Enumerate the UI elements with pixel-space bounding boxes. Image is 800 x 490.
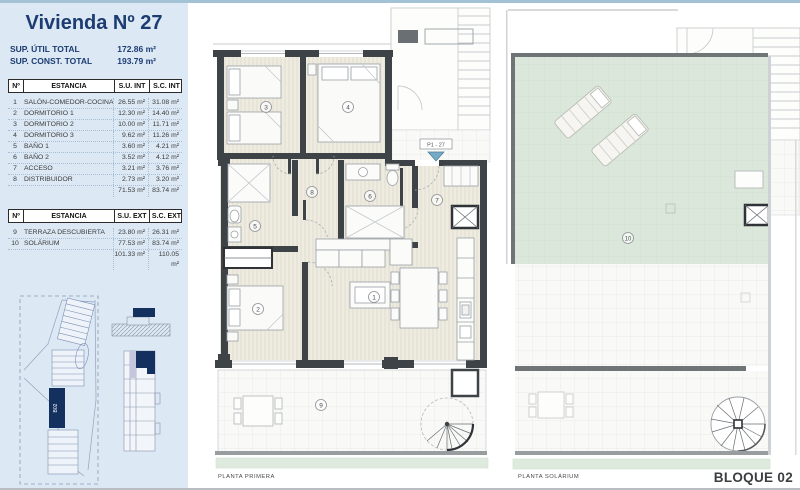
- table-row: 3DORMITORIO 210.00 m²11.71 m²: [8, 120, 182, 131]
- elevation-schematic: [124, 351, 160, 451]
- table-total-row: 71.53 m²83.74 m²: [8, 186, 182, 197]
- table-row: 6BAÑO 23.52 m²4.12 m²: [8, 153, 182, 164]
- roof-element: [398, 30, 418, 43]
- interior-areas-table: Nº ESTANCIA S.U. INT S.C. INT 1SALÓN-COM…: [8, 79, 182, 197]
- room-number: 6: [368, 193, 372, 200]
- surface-summary: SUP. ÚTIL TOTAL 172.86 m² SUP. CONST. TO…: [10, 43, 156, 67]
- section-highlight: [133, 308, 155, 317]
- summary-row: SUP. ÚTIL TOTAL 172.86 m²: [10, 43, 156, 55]
- plan-solarium: 10 PLANTA SOLÁRIUM BLOQUE 02: [506, 9, 800, 485]
- room-number: 1: [372, 294, 376, 301]
- room-number: 8: [310, 189, 314, 196]
- col-header-num: Nº: [9, 80, 23, 92]
- solarium-deck: [513, 56, 768, 264]
- col-header-name: ESTANCIA: [23, 80, 114, 92]
- shaft-box: [745, 205, 769, 225]
- table-header: Nº ESTANCIA S.U. INT S.C. INT: [8, 79, 182, 93]
- section-diagram: [112, 308, 170, 336]
- room-number: 10: [625, 236, 632, 242]
- floor-plans: P1 - 27 1 2 3 4 5 6 7 8 9 PLANTA PRIMERA: [195, 0, 800, 490]
- table-row: 1SALÓN-COMEDOR-COCINA26.55 m²31.08 m²: [8, 98, 182, 109]
- table-row: 2DORMITORIO 112.30 m²14.40 m²: [8, 109, 182, 120]
- table-body: 1SALÓN-COMEDOR-COCINA26.55 m²31.08 m² 2D…: [8, 98, 182, 197]
- room-number: 3: [264, 104, 268, 111]
- room-numbers: 10: [623, 233, 634, 244]
- summary-label: SUP. CONST. TOTAL: [10, 55, 92, 67]
- right-wall-line: [768, 56, 771, 455]
- table-row: 5BAÑO 13.60 m²4.21 m²: [8, 142, 182, 153]
- terrace-parapet: [215, 451, 487, 455]
- floorplan-sheet: Vivienda Nº 27 SUP. ÚTIL TOTAL 172.86 m²…: [0, 0, 800, 490]
- summary-label: SUP. ÚTIL TOTAL: [10, 43, 80, 55]
- elevation-adjacent-unit: [130, 351, 136, 378]
- solarium-wall-top: [511, 53, 768, 57]
- col-header-su: S.U. EXT: [114, 210, 149, 222]
- col-header-su: S.U. INT: [114, 80, 149, 92]
- block-title: BLOQUE 02: [714, 470, 793, 485]
- exterior-areas-table: Nº ESTANCIA S.U. EXT S.C. EXT 9TERRAZA D…: [8, 209, 182, 261]
- summary-value: 172.86 m²: [117, 43, 156, 55]
- elevation-highlight: [136, 351, 155, 368]
- plan-primera-caption: PLANTA PRIMERA: [218, 474, 275, 480]
- terrace-wall: [515, 366, 745, 371]
- col-header-sc: S.C. EXT: [149, 210, 183, 222]
- room-number: 5: [253, 223, 257, 230]
- col-header-num: Nº: [9, 210, 23, 222]
- summary-row: SUP. CONST. TOTAL 193.79 m²: [10, 55, 156, 67]
- far-right-line: [795, 140, 797, 455]
- summary-value: 193.79 m²: [117, 55, 156, 67]
- table-row: 9TERRAZA DESCUBIERTA23.80 m²26.31 m²: [8, 228, 182, 239]
- page-title: Vivienda Nº 27: [0, 12, 188, 35]
- shaft-box: [452, 206, 478, 228]
- entrance-label: P1 - 27: [427, 143, 445, 149]
- table-row: 4DORMITORIO 39.62 m²11.26 m²: [8, 131, 182, 142]
- spiral-stair: [711, 397, 765, 451]
- roof-tiles: [515, 264, 768, 366]
- room-number: 9: [319, 402, 323, 409]
- col-header-name: ESTANCIA: [23, 210, 114, 222]
- room-number: 2: [256, 306, 260, 313]
- planter-box: [735, 171, 763, 188]
- table-body: 9TERRAZA DESCUBIERTA23.80 m²26.31 m² 10S…: [8, 228, 182, 261]
- site-buildings: [48, 298, 95, 474]
- terrace-parapet: [515, 451, 768, 455]
- info-panel: Vivienda Nº 27 SUP. ÚTIL TOTAL 172.86 m²…: [0, 3, 188, 488]
- table-header: Nº ESTANCIA S.U. EXT S.C. EXT: [8, 209, 182, 223]
- planter-strip: [513, 459, 770, 469]
- roof-edge-line: [508, 9, 678, 11]
- site-location-diagrams: B02: [0, 290, 188, 488]
- table-row: 10SOLÁRIUM77.53 m²83.74 m²: [8, 239, 182, 250]
- block-code-label: B02: [53, 403, 59, 412]
- solarium-wall-left: [511, 53, 515, 264]
- left-edge-line: [506, 10, 508, 264]
- table-total-row: 101.33 m²110.05 m²: [8, 250, 182, 261]
- plan-primera: P1 - 27 1 2 3 4 5 6 7 8 9 PLANTA PRIMERA: [213, 8, 490, 480]
- kitchen-counter: [457, 238, 474, 360]
- table-row: 8DISTRIBUIDOR2.73 m²3.20 m²: [8, 175, 182, 186]
- table-row: 7ACCESO3.21 m²3.76 m²: [8, 164, 182, 175]
- col-header-sc: S.C. INT: [149, 80, 183, 92]
- entry-closet: [444, 166, 478, 186]
- plan-solarium-caption: PLANTA SOLÁRIUM: [518, 473, 579, 480]
- planter-strip: [216, 458, 488, 468]
- room-number: 7: [435, 197, 439, 204]
- room-number: 4: [346, 104, 350, 111]
